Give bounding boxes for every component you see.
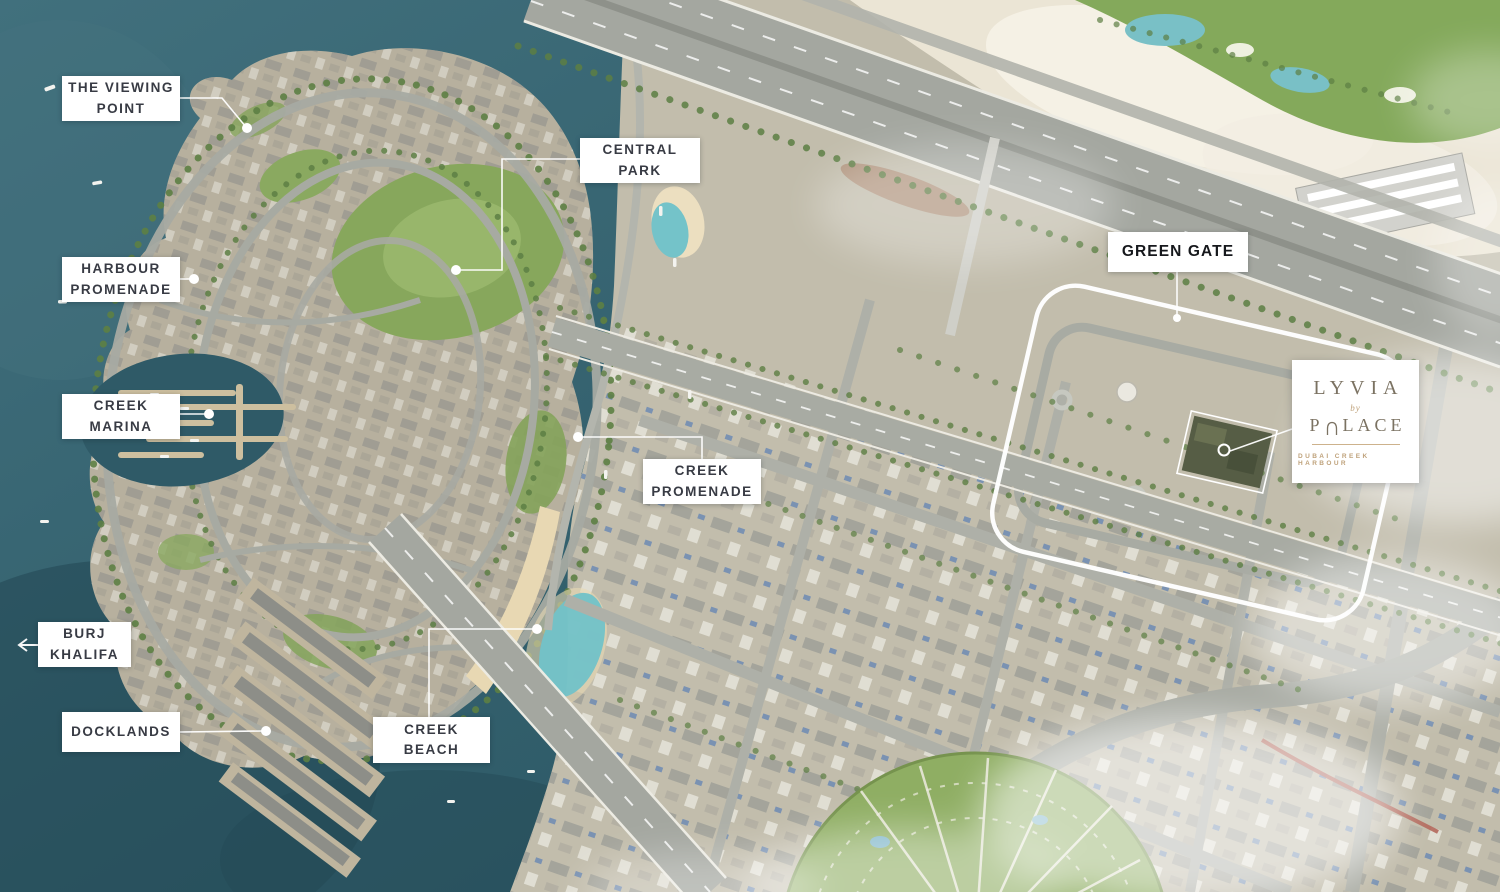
label-central-park: CENTRAL PARK	[580, 138, 700, 183]
label-harbour-promenade: HARBOUR PROMENADE	[62, 257, 180, 302]
label-text: CREEK	[404, 720, 459, 740]
label-docklands: DOCKLANDS	[62, 712, 180, 752]
label-text: MARINA	[90, 417, 153, 437]
label-text: PARK	[618, 161, 661, 181]
brand-letter: P	[1305, 415, 1323, 436]
label-text: BURJ	[63, 624, 106, 644]
label-text: BEACH	[404, 740, 460, 760]
label-burj-khalifa: BURJ KHALIFA	[38, 622, 131, 667]
label-green-gate: GREEN GATE	[1108, 232, 1248, 272]
label-text: GREEN GATE	[1122, 240, 1234, 263]
brand-letter: LACE	[1339, 415, 1406, 436]
masterplan-page: { "page": { "title": "Dubai Creek Harbou…	[0, 0, 1500, 892]
label-text: PROMENADE	[651, 482, 752, 502]
dome-building	[1117, 382, 1137, 402]
label-creek-beach: CREEK BEACH	[373, 717, 490, 763]
label-text: POINT	[97, 99, 146, 119]
label-text: HARBOUR	[81, 259, 161, 279]
label-text: KHALIFA	[50, 645, 119, 665]
label-text: CENTRAL	[603, 140, 678, 160]
aerial-map	[0, 0, 1500, 892]
brand-divider	[1312, 444, 1400, 445]
brand-name-line2: P LACE	[1305, 415, 1405, 436]
lyvia-palace-logo-card: LYVIA by P LACE DUBAI CREEK HARBOUR	[1292, 360, 1419, 483]
brand-tagline: DUBAI CREEK HARBOUR	[1298, 453, 1413, 467]
label-text: CREEK	[94, 396, 149, 416]
label-text: PROMENADE	[70, 280, 171, 300]
label-text: THE VIEWING	[68, 78, 174, 98]
brand-name-line1: LYVIA	[1307, 377, 1403, 400]
brand-by: by	[1350, 403, 1361, 413]
label-creek-promenade: CREEK PROMENADE	[643, 459, 761, 504]
label-text: CREEK	[675, 461, 730, 481]
label-the-viewing-point: THE VIEWING POINT	[62, 76, 180, 121]
arch-icon	[1326, 421, 1338, 435]
label-text: DOCKLANDS	[71, 722, 171, 742]
label-creek-marina: CREEK MARINA	[62, 394, 180, 439]
